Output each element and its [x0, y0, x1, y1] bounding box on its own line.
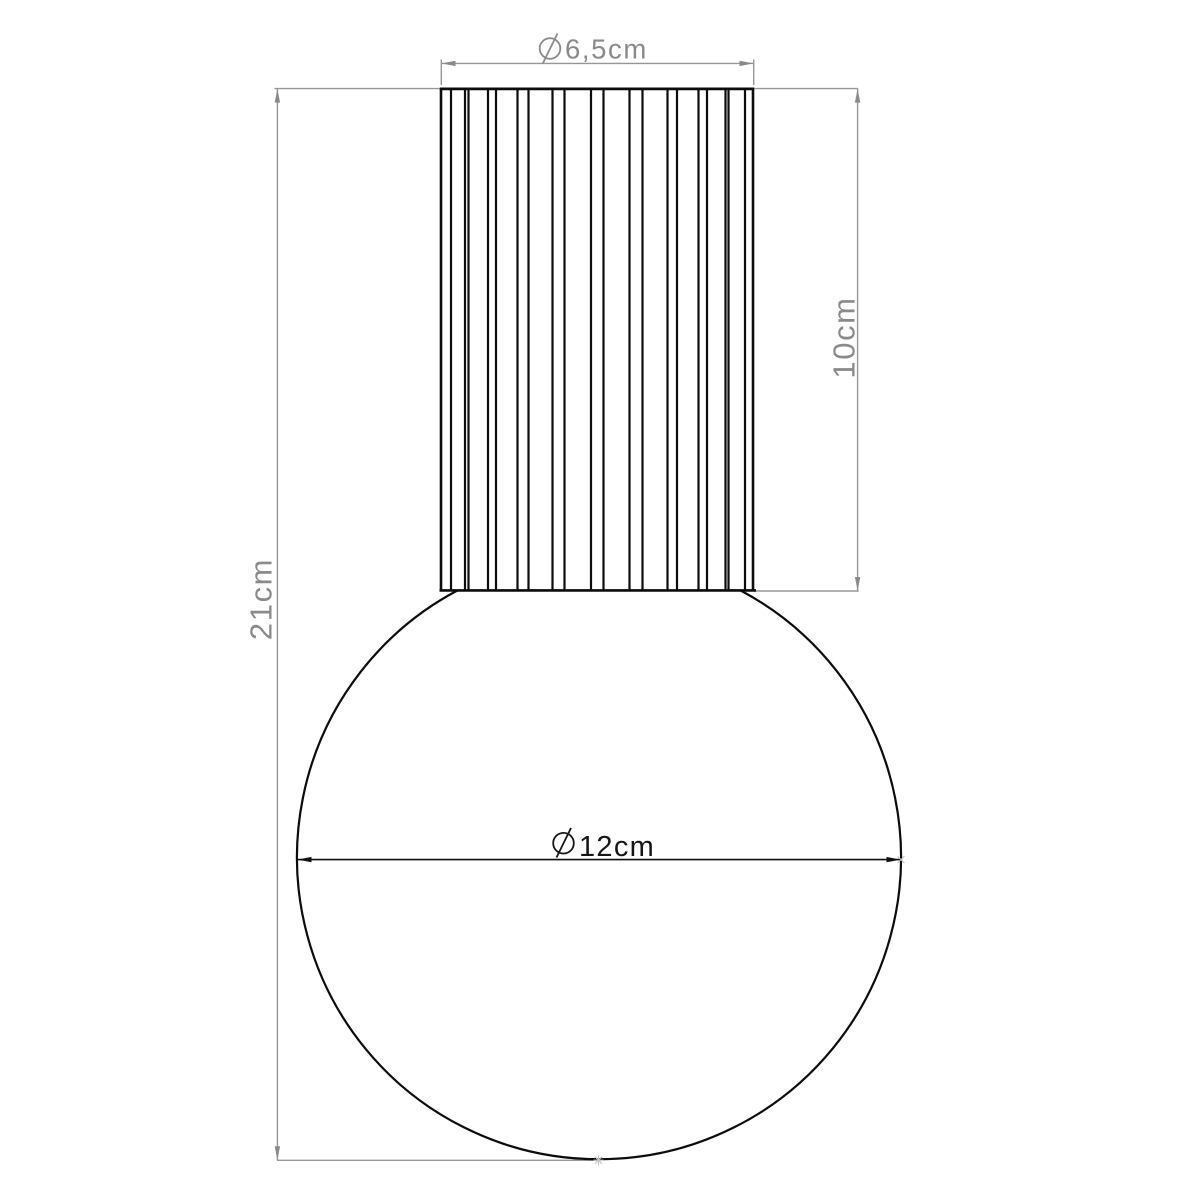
svg-text:10cm: 10cm [827, 296, 862, 378]
svg-text:6,5cm: 6,5cm [565, 34, 648, 65]
svg-text:12cm: 12cm [579, 831, 655, 863]
svg-text:21cm: 21cm [244, 558, 279, 640]
